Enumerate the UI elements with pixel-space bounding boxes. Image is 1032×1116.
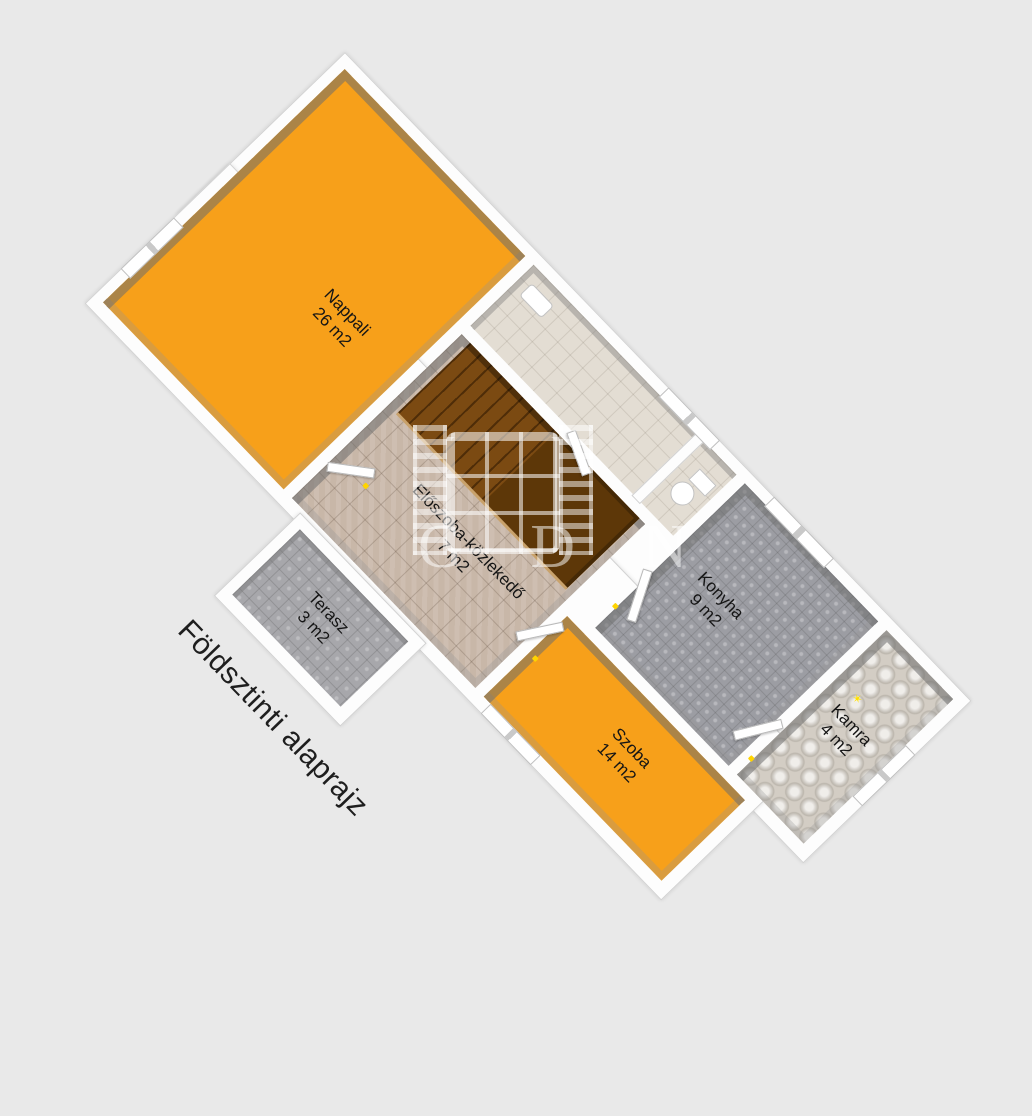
floor-plan-page: { "title": "Földsztinti alaprajz", "wate…: [0, 0, 1032, 1024]
rotated-plan: ✶ Nappali 26 m2 Előszoba-közlekedő 7 m2 …: [0, 52, 977, 1116]
